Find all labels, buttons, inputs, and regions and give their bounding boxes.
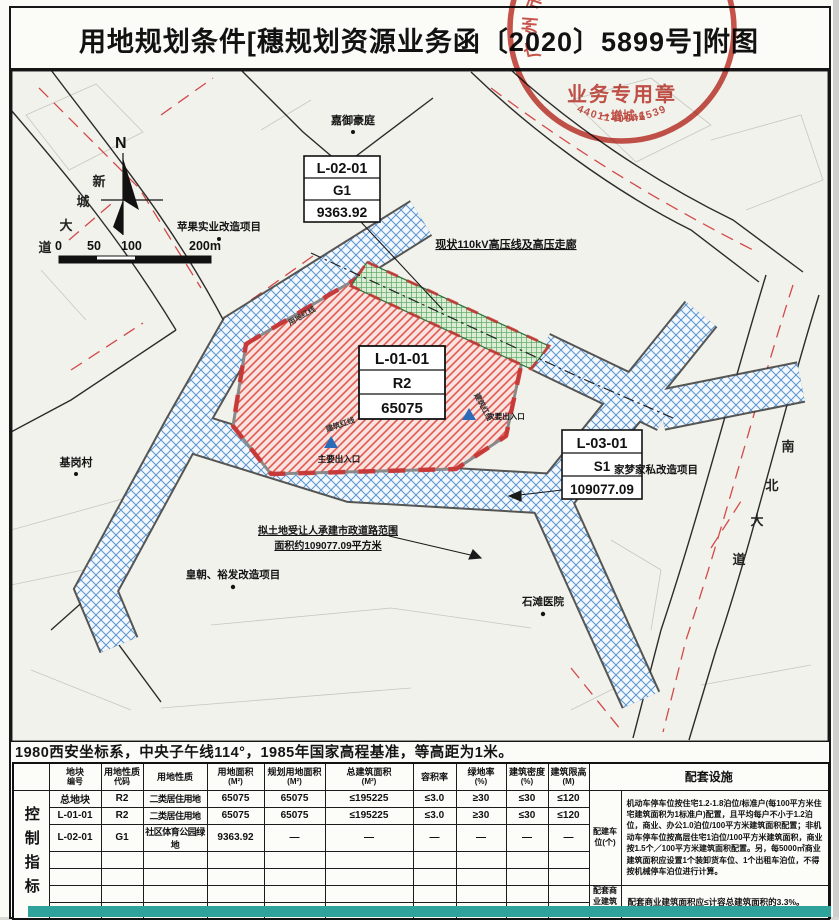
page-edge: [833, 0, 839, 917]
point-jiayu: [351, 130, 355, 134]
parcel-box-L02: L-02-01 G1 9363.92: [304, 156, 380, 222]
parcel-type: S1: [594, 459, 611, 474]
header-planned-area: 规划用地面积(M²): [264, 763, 325, 790]
header-far: 容积率: [413, 763, 456, 790]
parcel-code: L-02-01: [317, 161, 368, 177]
parcel-type: R2: [393, 376, 412, 392]
header-density: 建筑密度(%): [506, 763, 548, 790]
road-name-nanbei-char: 北: [765, 478, 778, 493]
point-jigang: [74, 472, 78, 476]
parcel-type: G1: [333, 183, 352, 198]
parcel-area: 65075: [381, 400, 423, 417]
parking-text-cell: 机动车停车位按住宅1.2-1.8泊位/标准户(每100平方米住宅建筑面积为1标准…: [621, 790, 829, 885]
table-row: 配套商业建筑面积 配套商业建筑面积应≤计容总建筑面积的3.3%。: [13, 885, 829, 902]
stamp-ring-text: 广州市规划和自然资源局: [520, 0, 709, 60]
header-plot-code: 地块编号: [49, 763, 101, 790]
header-gfa: 总建筑面积(M²): [325, 763, 413, 790]
parcel-code: L-03-01: [577, 436, 628, 452]
compass-icon: N: [101, 135, 163, 235]
road-name-xincheng-char: 城: [76, 194, 89, 209]
point-pingguo: [217, 237, 221, 241]
official-stamp: 广州市规划和自然资源局 业务专用章 －增城-1 4401140046539: [495, 0, 753, 170]
label-huangchao: 皇朝、裕发改造项目: [186, 568, 281, 581]
header-green-ratio: 绿地率(%): [456, 763, 506, 790]
label-jiameng: 家梦家私改造项目: [614, 463, 698, 476]
parcel-code: L-01-01: [375, 351, 430, 368]
label-road-note-1: 拟土地受让人承建市政道路范围: [258, 524, 398, 537]
scale-100: 100: [121, 239, 142, 253]
svg-text:广州市规划和自然资源局: 广州市规划和自然资源局: [520, 0, 709, 60]
table-row: 控制指标 总地块R2 二类居住用地65075 65075≤195225 ≤3.0…: [13, 790, 829, 807]
point-huangchao: [231, 585, 235, 589]
road-name-nanbei-char: 南: [781, 439, 794, 454]
road-name-xincheng-char: 新: [92, 174, 105, 189]
point-shitan: [541, 612, 545, 616]
header-amenities: 配套设施: [589, 763, 829, 790]
scale-50: 50: [87, 239, 101, 253]
header-landuse: 用地性质: [143, 763, 207, 790]
compass-n-label: N: [115, 135, 127, 152]
stamp-number: 4401140046539: [575, 103, 669, 125]
road-name-nanbei-char: 道: [732, 552, 745, 567]
header-landuse-code: 用地性质代码: [101, 763, 143, 790]
label-road-note-2: 面积约109077.09平方米: [274, 539, 382, 552]
header-height-limit: 建筑限高(M): [548, 763, 589, 790]
label-shitan: 石滩医院: [521, 595, 564, 608]
stamp-center-text: 业务专用章: [567, 82, 677, 106]
road-name-xincheng-char: 大: [59, 218, 72, 233]
label-pingguo: 苹果实业改造项目: [177, 220, 261, 233]
road-name-nanbei-char: 大: [750, 513, 763, 528]
parcel-box-L01: L-01-01 R2 65075: [359, 346, 445, 419]
parcel-area: 109077.09: [570, 482, 634, 497]
coordinate-system-note: 1980西安坐标系，中央子午线114°，1985年国家高程基准，等高距为1米。: [15, 741, 775, 762]
label-power-line: 现状110kV高压线及高压走廊: [435, 237, 576, 251]
header-corner: [13, 763, 49, 790]
header-land-area: 用地面积(M²): [207, 763, 264, 790]
scale-200: 200m: [189, 239, 221, 253]
label-jiayu: 嘉御豪庭: [330, 113, 375, 127]
side-label-cell: 控制指标: [13, 790, 49, 919]
svg-text:4401140046539: 4401140046539: [575, 103, 669, 125]
bottom-strip: [28, 906, 831, 917]
label-jigang: 基岗村: [59, 455, 93, 469]
parking-label-cell: 配建车位(个): [589, 790, 621, 885]
parcel-area: 9363.92: [317, 204, 368, 220]
scale-bar: 0 50 100 200m: [55, 239, 221, 263]
road-name-xincheng-char: 道: [38, 240, 51, 255]
scale-0: 0: [55, 239, 62, 253]
label-main-entrance: 主要出入口: [318, 454, 361, 464]
control-indicators-table: 地块编号 用地性质代码 用地性质 用地面积(M²) 规划用地面积(M²) 总建筑…: [12, 762, 830, 920]
